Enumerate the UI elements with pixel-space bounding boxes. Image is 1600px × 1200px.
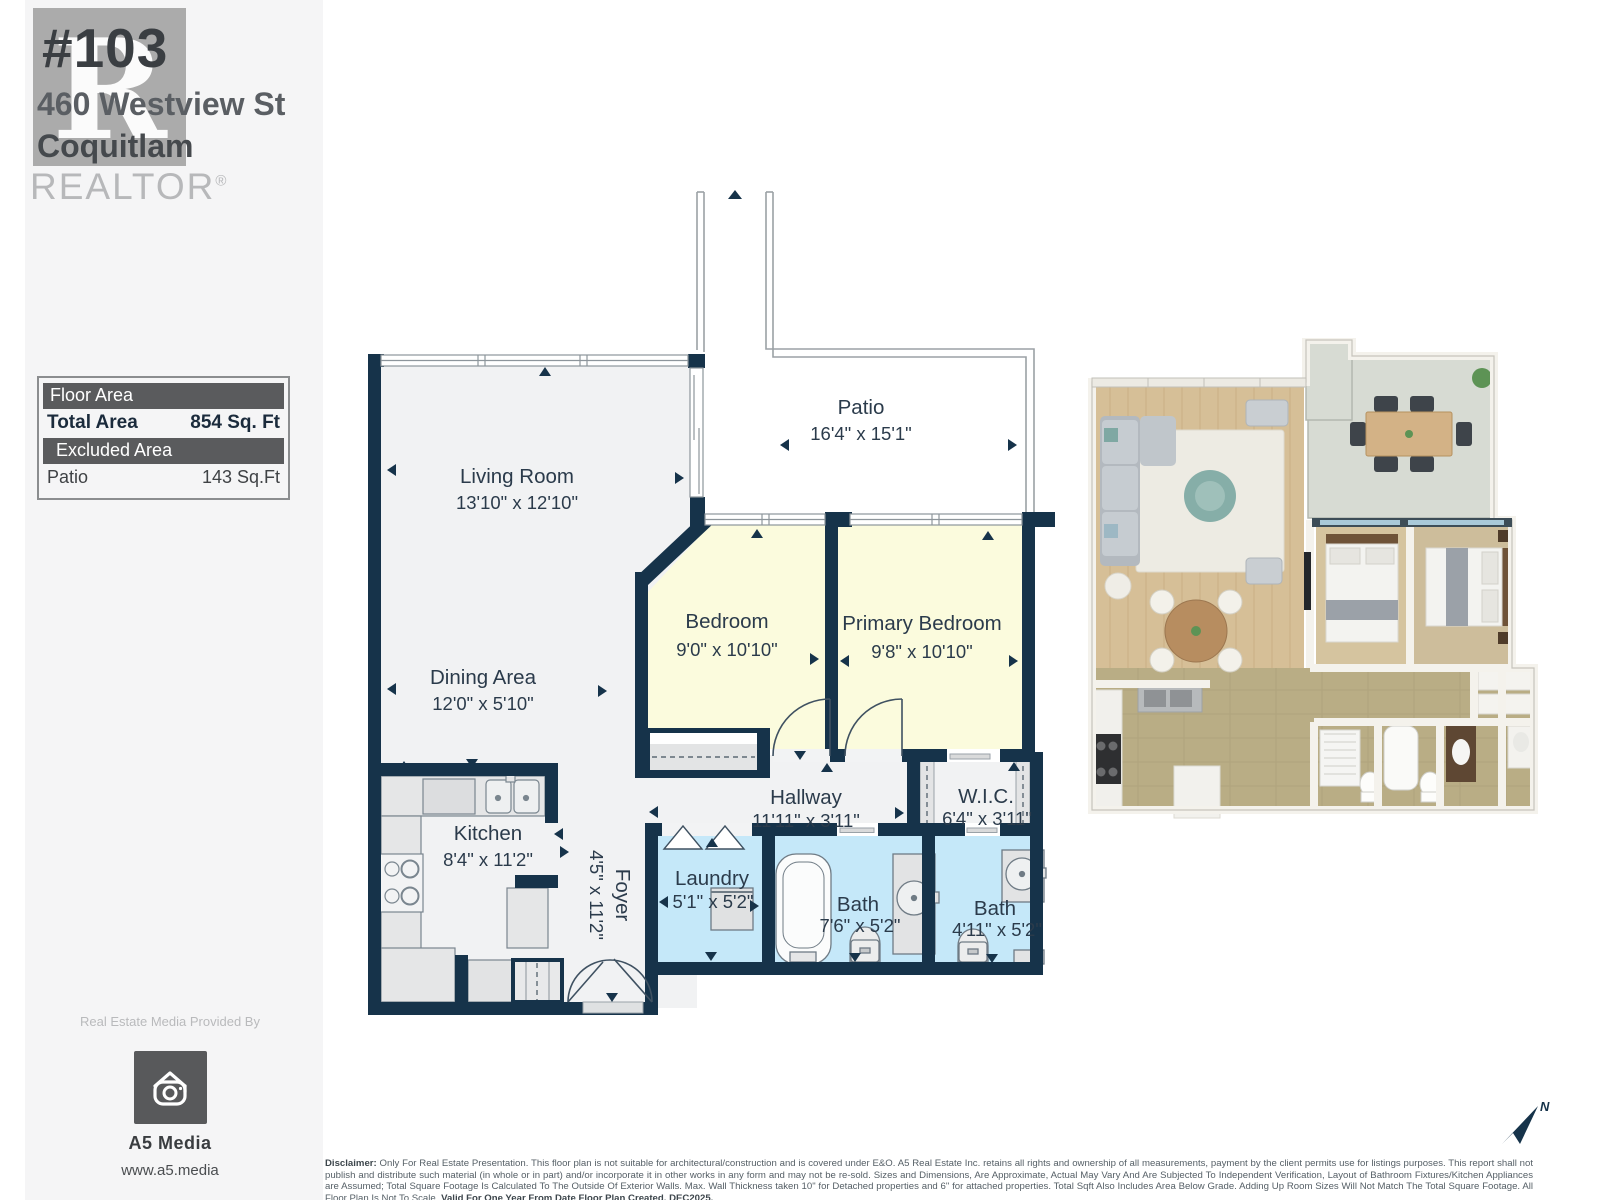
3d-window-glass-2 — [1408, 520, 1504, 525]
total-area-label: Total Area — [47, 412, 138, 434]
room-label-laundry: Laundry — [675, 867, 750, 890]
floor-lamp — [1105, 573, 1131, 599]
disclaimer-text: Disclaimer: Only For Real Estate Present… — [325, 1158, 1533, 1200]
north-arrow-icon — [1502, 1106, 1538, 1144]
room-dims-foyer: 4'5" x 11'2" — [586, 850, 607, 940]
total-area-value: 854 Sq. Ft — [190, 412, 280, 434]
2d-floor-plan: Living Room 13'10" x 12'10" Patio 16'4" … — [355, 180, 1060, 1025]
room-dims-living: 13'10" x 12'10" — [456, 492, 578, 513]
total-area-row: Total Area 854 Sq. Ft — [43, 409, 284, 438]
room-dims-laundry: 5'1" x 5'2" — [673, 891, 754, 912]
city-name: Coquitlam — [37, 128, 193, 165]
north-compass: N — [1492, 1096, 1558, 1154]
3d-floor-plan — [1078, 338, 1560, 855]
camera-house-icon — [147, 1065, 193, 1111]
room-label-kitchen: Kitchen — [454, 822, 522, 845]
room-dims-bath1: 7'6" x 5'2" — [820, 915, 901, 936]
street-address: 460 Westview St — [37, 86, 285, 123]
room-label-foyer: Foyer — [611, 869, 634, 922]
media-provider-block: Real Estate Media Provided By A5 Media w… — [60, 1014, 280, 1179]
bed-middle — [1326, 534, 1398, 642]
realtor-wordmark: REALTOR® — [30, 166, 228, 208]
a5-media-logo — [134, 1051, 207, 1124]
room-dims-wic: 6'4" x 3'11" — [942, 808, 1032, 829]
walkway-entry-arrow — [728, 190, 742, 199]
entry-closet — [513, 960, 562, 1002]
provider-name: A5 Media — [60, 1133, 280, 1154]
accent-chair-2 — [1246, 558, 1282, 584]
room-label-bath2: Bath — [974, 897, 1016, 920]
disclaimer-label: Disclaimer: — [325, 1158, 377, 1169]
room-label-dining: Dining Area — [430, 666, 537, 689]
excluded-area-name: Patio — [47, 467, 88, 488]
bedroom-closet — [650, 733, 757, 770]
disclaimer-bold-tail: Valid For One Year From Date Floor Plan … — [441, 1193, 713, 1200]
provider-caption: Real Estate Media Provided By — [60, 1014, 280, 1029]
coffee-table-top — [1195, 481, 1225, 511]
room-label-wic: W.I.C. — [958, 785, 1014, 808]
accent-chair — [1246, 400, 1288, 426]
room-label-living: Living Room — [460, 465, 574, 488]
room-dims-primary: 9'8" x 10'10" — [871, 641, 972, 662]
room-label-patio: Patio — [838, 396, 885, 419]
room-dims-hallway: 11'11" x 3'11" — [752, 810, 860, 831]
excluded-area-row: Patio 143 Sq.Ft — [43, 464, 284, 492]
3d-tv — [1304, 552, 1311, 610]
unit-number: #103 — [42, 16, 168, 80]
3d-window-glass-1 — [1320, 520, 1400, 525]
floor-area-table: Floor Area Total Area 854 Sq. Ft Exclude… — [37, 376, 290, 500]
floor-plan-page: R #103 460 Westview St Coquitlam REALTOR… — [0, 0, 1600, 1200]
room-label-bedroom: Bedroom — [685, 610, 768, 633]
walkway-3d — [1306, 340, 1352, 420]
realtor-wordmark-text: REALTOR — [30, 166, 215, 207]
north-label: N — [1540, 1099, 1550, 1114]
primary-bedroom-floor — [836, 523, 1024, 749]
room-label-bath1: Bath — [837, 893, 879, 916]
registered-symbol: ® — [215, 173, 228, 190]
room-dims-bath2: 4'11" x 5'2" — [952, 919, 1042, 940]
room-label-primary: Primary Bedroom — [842, 612, 1002, 635]
excluded-area-value: 143 Sq.Ft — [202, 467, 280, 488]
provider-website: www.a5.media — [60, 1162, 280, 1179]
room-dims-kitchen: 8'4" x 11'2" — [443, 849, 533, 870]
room-dims-bedroom: 9'0" x 10'10" — [676, 639, 777, 660]
3d-living-windows — [1092, 378, 1306, 387]
room-label-hallway: Hallway — [770, 786, 843, 809]
room-dims-patio: 16'4" x 15'1" — [810, 423, 911, 444]
floor-area-header: Floor Area — [43, 383, 284, 409]
excluded-area-header: Excluded Area — [43, 438, 284, 464]
room-dims-dining: 12'0" x 5'10" — [432, 693, 533, 714]
